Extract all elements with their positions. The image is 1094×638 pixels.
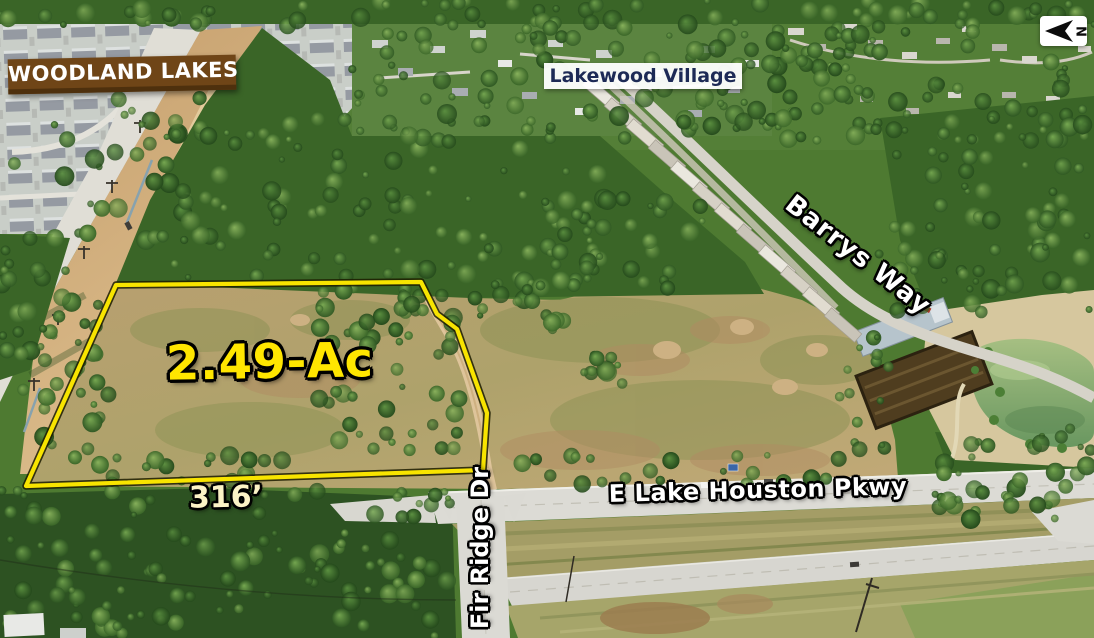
street-label-fir-ridge-dr: Fir Ridge Dr [460,458,500,638]
car [850,562,859,568]
acreage-label: 2.49-Ac [166,332,372,392]
neighborhood-label-lakewood-village: Lakewood Village [544,63,742,89]
north-letter: N [1073,26,1088,37]
north-arrow-icon: N [1040,16,1087,46]
north-arrow: N [1040,16,1087,46]
subdivision-sign-woodland-lakes: WOODLAND LAKES [8,55,237,95]
rooftop [3,613,44,637]
aerial-photo-background [0,0,1094,638]
road-sign [728,464,738,471]
aerial-photo: WOODLAND LAKES Lakewood Village N Barrys… [0,0,1094,638]
frontage-label: 316’ [176,479,277,516]
